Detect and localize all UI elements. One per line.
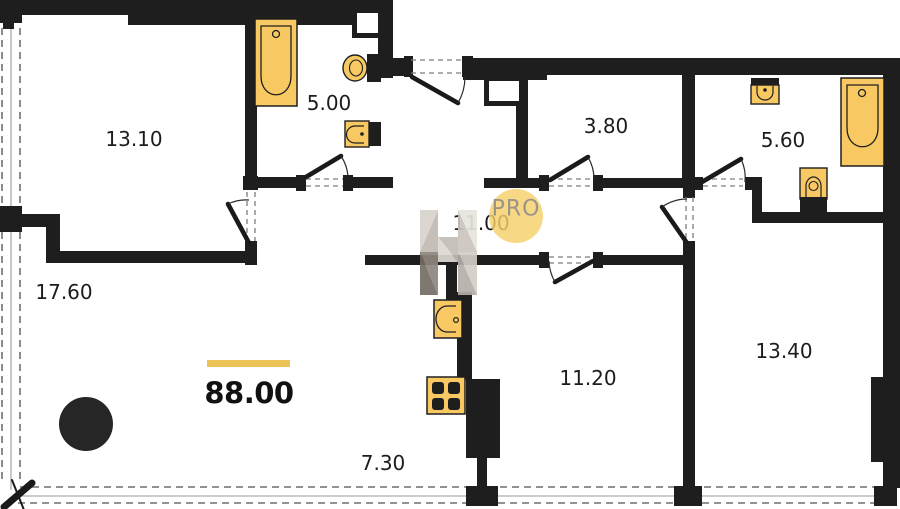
walls xyxy=(0,0,900,506)
room-area-label: 13.40 xyxy=(755,339,812,363)
floor-plan: 13.10 5.00 3.80 5.60 11.00 17.60 11.20 1… xyxy=(0,0,900,509)
total-area-accent-bar xyxy=(207,360,290,367)
room-area-label: 5.00 xyxy=(307,91,352,115)
watermark-pro-label: PRO xyxy=(492,197,541,222)
room-area-label: 7.30 xyxy=(361,451,406,475)
room-area-label: 11.20 xyxy=(559,366,616,390)
room-area-label: 17.60 xyxy=(35,280,92,304)
bathtub-icon xyxy=(841,78,884,166)
room-area-label: 5.60 xyxy=(761,128,806,152)
toilet-icon xyxy=(343,54,381,82)
total-area-label: 88.00 xyxy=(204,376,293,410)
sink-icon xyxy=(345,121,381,147)
room-area-label: 13.10 xyxy=(105,127,162,151)
sink-icon xyxy=(751,78,779,104)
toilet-icon xyxy=(800,168,827,212)
stove-icon xyxy=(427,377,465,414)
column xyxy=(59,397,113,451)
room-area-label: 3.80 xyxy=(584,114,629,138)
kitchen-sink-icon xyxy=(434,300,462,338)
corner-break-mark xyxy=(4,480,32,509)
refrigerator-block xyxy=(466,379,500,458)
floor-plan-drawing xyxy=(0,0,900,509)
bathtub-icon xyxy=(255,19,297,106)
